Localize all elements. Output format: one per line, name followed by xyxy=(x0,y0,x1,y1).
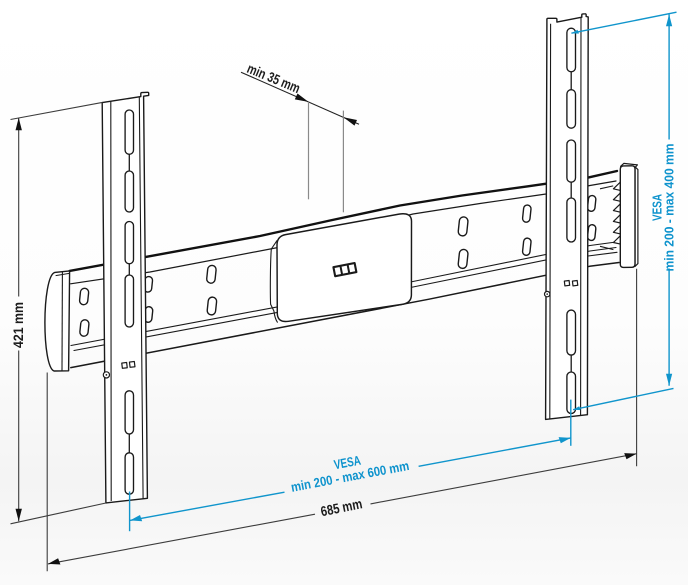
svg-text:421 mm: 421 mm xyxy=(10,302,26,348)
svg-text:min 200 - max 400 mm: min 200 - max 400 mm xyxy=(662,144,677,272)
